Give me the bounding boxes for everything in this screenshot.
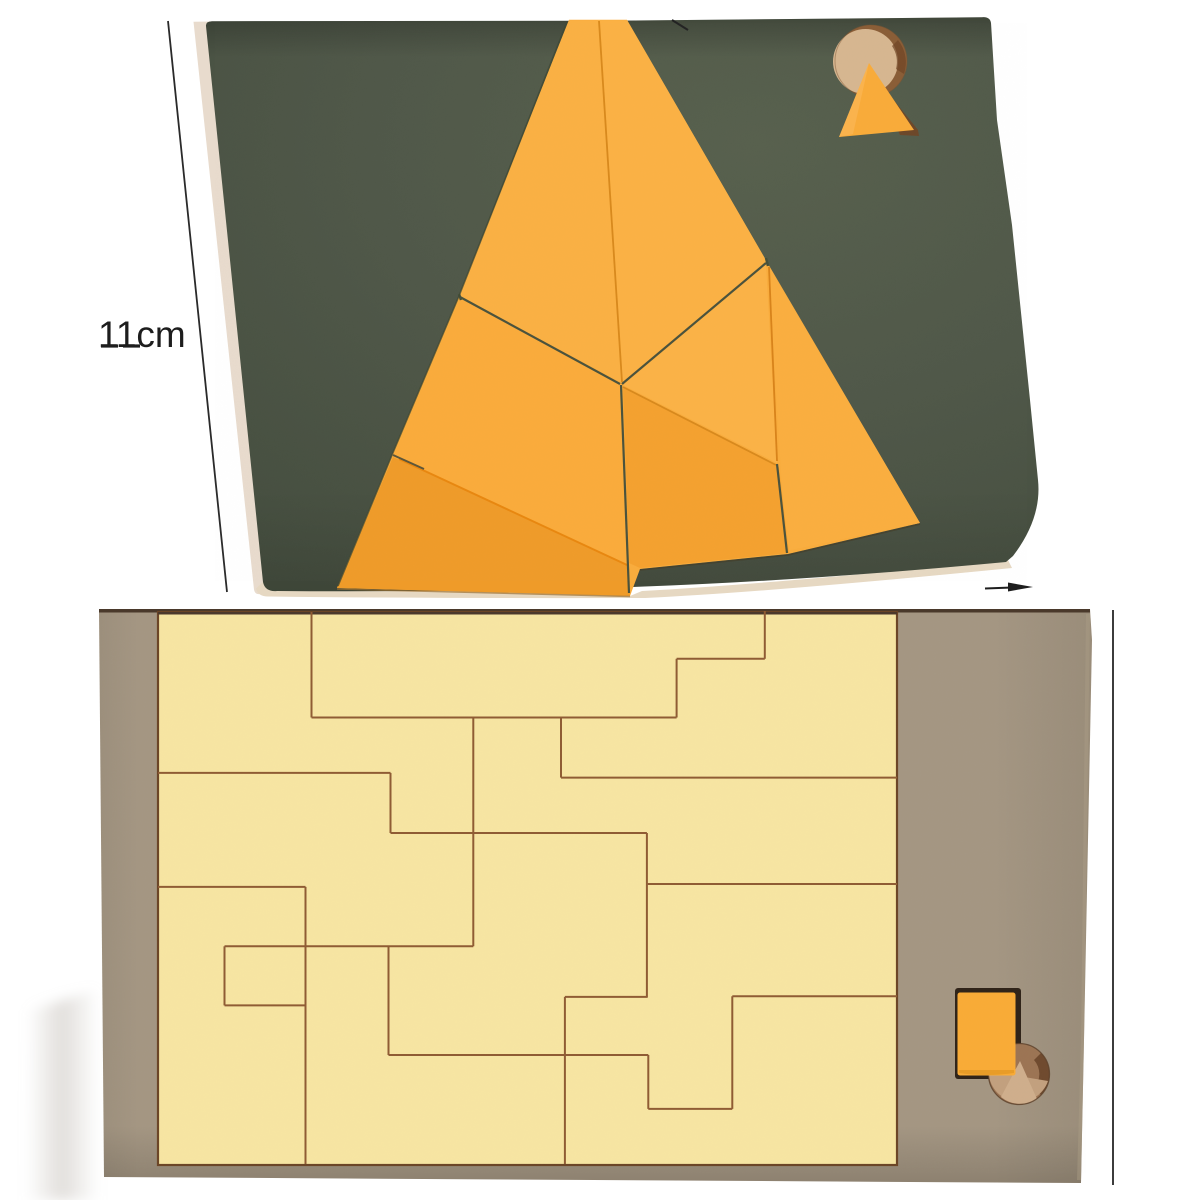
- svg-text:11cm: 11cm: [98, 314, 186, 355]
